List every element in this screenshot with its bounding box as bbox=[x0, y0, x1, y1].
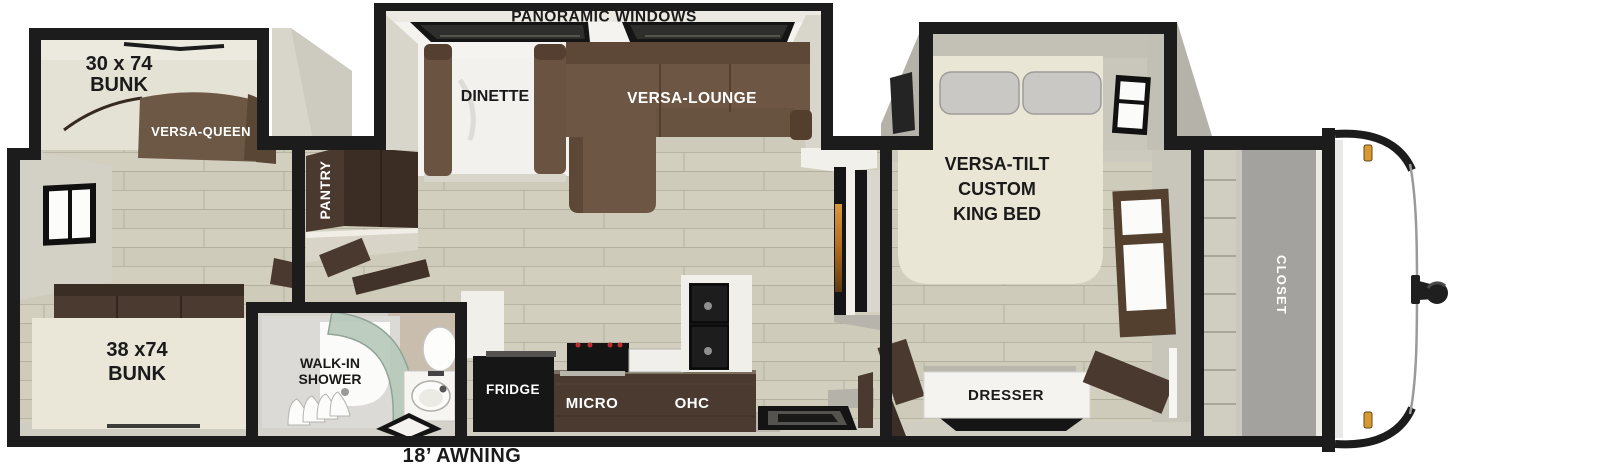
svg-text:DINETTE: DINETTE bbox=[461, 88, 530, 105]
svg-text:OHC: OHC bbox=[675, 395, 710, 412]
svg-text:BUNK: BUNK bbox=[90, 74, 148, 96]
svg-text:38 x74: 38 x74 bbox=[106, 339, 168, 361]
svg-text:VERSA-LOUNGE: VERSA-LOUNGE bbox=[627, 90, 757, 107]
svg-text:CLOSET: CLOSET bbox=[1274, 255, 1289, 315]
svg-text:18’ AWNING: 18’ AWNING bbox=[403, 445, 522, 467]
svg-text:PANORAMIC WINDOWS: PANORAMIC WINDOWS bbox=[511, 9, 697, 26]
svg-text:SHOWER: SHOWER bbox=[299, 371, 362, 387]
svg-text:KING BED: KING BED bbox=[953, 204, 1041, 224]
svg-text:CUSTOM: CUSTOM bbox=[958, 179, 1036, 199]
svg-text:DRESSER: DRESSER bbox=[968, 387, 1044, 404]
svg-text:FRIDGE: FRIDGE bbox=[486, 382, 540, 397]
svg-text:BUNK: BUNK bbox=[108, 363, 166, 385]
svg-text:30 x 74: 30 x 74 bbox=[86, 53, 154, 75]
svg-text:VERSA-TILT: VERSA-TILT bbox=[945, 154, 1050, 174]
svg-text:MICRO: MICRO bbox=[566, 395, 619, 412]
svg-text:VERSA-QUEEN: VERSA-QUEEN bbox=[151, 124, 251, 139]
svg-text:PANTRY: PANTRY bbox=[317, 160, 333, 219]
svg-text:WALK-IN: WALK-IN bbox=[300, 355, 360, 371]
